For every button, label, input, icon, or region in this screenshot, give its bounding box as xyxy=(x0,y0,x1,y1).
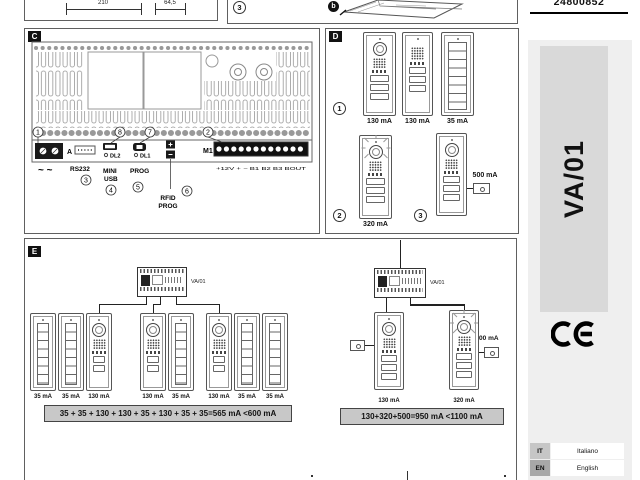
call-button xyxy=(443,194,460,201)
entry-panel-video xyxy=(206,313,232,391)
terminal-a-label: A xyxy=(67,149,72,156)
svg-text:3: 3 xyxy=(84,178,88,185)
callout-d2: 2 xyxy=(333,209,346,222)
speaker-grille xyxy=(373,58,386,68)
screw xyxy=(417,38,419,40)
call-button xyxy=(93,365,105,372)
accessory-device xyxy=(350,340,365,351)
connector-block xyxy=(141,275,150,286)
dl1-led xyxy=(134,153,137,156)
current-label: 35 mA xyxy=(168,394,194,400)
connector-block xyxy=(378,276,387,287)
prog-label: PROG xyxy=(130,168,149,175)
callout-d1: 1 xyxy=(333,102,346,115)
registration-mark xyxy=(504,475,506,477)
wire xyxy=(176,304,220,305)
dimension-line xyxy=(67,9,141,10)
wire xyxy=(466,188,473,189)
language-code: EN xyxy=(530,460,550,476)
call-button xyxy=(443,176,460,183)
call-button xyxy=(456,371,472,378)
call-button xyxy=(456,353,472,360)
wire xyxy=(410,304,465,306)
callout-b-badge: b xyxy=(328,1,339,12)
screw xyxy=(388,318,390,320)
camera-lens xyxy=(146,323,160,337)
mini-buttons xyxy=(146,351,161,354)
call-button xyxy=(456,362,472,369)
wire xyxy=(365,345,374,346)
sidebar: VA/01 IT Italiano EN English xyxy=(528,40,632,480)
m1-label: M1 xyxy=(203,148,213,155)
callout-d3: 3 xyxy=(414,209,427,222)
dimensions-box: 210 64,5 xyxy=(24,0,218,21)
button-stack xyxy=(448,42,467,110)
screw xyxy=(463,316,465,318)
wire xyxy=(153,304,161,305)
dimension-tick xyxy=(141,3,142,15)
callout-7: 7 xyxy=(145,127,155,137)
screw xyxy=(180,319,182,321)
current-label: 130 mA xyxy=(402,118,433,125)
callout-2: 2 xyxy=(203,127,213,137)
button-stack xyxy=(65,323,77,385)
call-button xyxy=(409,67,426,74)
va01-unit xyxy=(137,267,187,297)
part-number: 24800852 xyxy=(530,0,628,14)
entry-panel-video xyxy=(436,133,467,216)
board-top-plate xyxy=(32,42,312,140)
label-window xyxy=(389,276,400,286)
dl2-label: DL2 xyxy=(110,154,120,160)
m1-terminal-labels: +12V + − B1 B2 B3 BOUT xyxy=(216,166,307,171)
entry-panel-buttons xyxy=(168,313,194,391)
terminal-block-m1 xyxy=(214,142,308,156)
screw xyxy=(457,38,459,40)
language-name: Italiano xyxy=(551,443,624,459)
wire xyxy=(400,240,401,268)
svg-text:4: 4 xyxy=(109,188,113,195)
svg-text:5: 5 xyxy=(136,185,140,192)
callout-5: 5 xyxy=(133,182,143,192)
section-d-label: D xyxy=(329,31,342,42)
call-button xyxy=(93,356,105,363)
dip-contacts xyxy=(402,278,422,284)
speaker-grille xyxy=(369,161,382,171)
call-button xyxy=(213,356,225,363)
camera-lens xyxy=(457,320,471,334)
terminal-row xyxy=(140,269,184,273)
camera-lens xyxy=(382,322,396,336)
current-label: 320 mA xyxy=(359,221,392,228)
current-label: 35 mA xyxy=(30,394,56,400)
screw xyxy=(274,319,276,321)
consumption-sum: 35 + 35 + 130 + 130 + 35 + 130 + 35 + 35… xyxy=(44,405,292,422)
mini-buttons xyxy=(372,70,387,73)
dl1-label: DL1 xyxy=(140,154,150,160)
entry-panel-audio xyxy=(402,32,433,116)
call-button xyxy=(366,196,385,203)
screw xyxy=(152,319,154,321)
svg-text:6: 6 xyxy=(185,189,189,196)
svg-text:PROG: PROG xyxy=(158,203,177,210)
video-connector xyxy=(256,64,272,80)
entry-panel-video xyxy=(374,312,404,390)
current-label: 130 mA xyxy=(206,394,232,400)
current-label: 130 mA xyxy=(374,398,404,404)
unit-label: VA/01 xyxy=(430,280,445,286)
speaker-grille xyxy=(147,339,160,349)
current-label: 35 mA xyxy=(262,394,288,400)
current-label: 35 mA xyxy=(441,118,474,125)
call-button xyxy=(409,85,426,92)
controller-board-drawing: A DL2 DL1 xyxy=(26,40,318,232)
terminal-row xyxy=(377,270,423,274)
call-button xyxy=(366,187,385,194)
callout-8: 8 xyxy=(115,127,125,137)
model-banner: VA/01 xyxy=(540,46,608,312)
manual-page: 210 64,5 3 b 24800852 C xyxy=(0,0,640,480)
camera-lens xyxy=(445,143,459,157)
button-stack xyxy=(175,323,187,385)
current-label: 35 mA xyxy=(58,394,84,400)
screw xyxy=(451,139,453,141)
ac-power-symbols: ~ ~ xyxy=(38,165,53,176)
language-row: EN English xyxy=(530,460,624,476)
rfid-prog-label: RFID xyxy=(160,195,175,202)
entry-panel-buttons xyxy=(30,313,56,391)
registration-mark xyxy=(407,471,408,480)
language-row: IT Italiano xyxy=(530,443,624,459)
va01-unit xyxy=(374,268,426,298)
svg-text:7: 7 xyxy=(148,130,152,137)
entry-panel-buttons xyxy=(262,313,288,391)
entry-panel-video xyxy=(86,313,112,391)
dimension-value: 210 xyxy=(83,0,123,6)
language-name: English xyxy=(551,460,624,476)
mini-buttons xyxy=(382,350,397,353)
screw xyxy=(98,319,100,321)
camera-lens xyxy=(92,323,106,337)
accessory-device xyxy=(473,183,490,194)
call-button xyxy=(370,84,389,91)
svg-text:1: 1 xyxy=(36,130,40,137)
call-button xyxy=(366,178,385,185)
mini-buttons xyxy=(410,62,425,65)
model-name: VA/01 xyxy=(559,140,590,218)
button-stack xyxy=(269,323,281,385)
rfid-jumper xyxy=(166,141,175,190)
step-number-callout: 3 xyxy=(233,1,246,14)
mini-buttons xyxy=(92,351,107,354)
wire xyxy=(386,298,387,312)
call-button xyxy=(443,185,460,192)
callout-3: 3 xyxy=(81,175,91,185)
device-isometric-sketch xyxy=(336,0,476,21)
video-connector xyxy=(230,64,246,80)
screw xyxy=(375,141,377,143)
speaker-grille xyxy=(93,339,106,349)
label-window xyxy=(152,275,163,285)
current-label: 130 mA xyxy=(86,394,112,400)
terminal-row xyxy=(140,287,184,291)
dimension-line xyxy=(155,9,185,10)
entry-panel-buttons xyxy=(441,32,474,116)
button-stack xyxy=(37,323,49,385)
language-code: IT xyxy=(530,443,550,459)
label-window xyxy=(88,52,143,109)
terminal-block-a xyxy=(35,143,63,159)
entry-panel-video xyxy=(140,313,166,391)
speaker-grille xyxy=(213,339,226,349)
camera-lens xyxy=(369,145,383,159)
call-button xyxy=(147,365,159,372)
button-stack xyxy=(241,323,253,385)
mini-usb-connector xyxy=(103,143,117,150)
rs232-label: RS232 xyxy=(70,166,90,173)
call-button xyxy=(370,93,389,100)
mini-buttons xyxy=(212,351,227,354)
mini-buttons xyxy=(444,171,459,174)
dl2-led xyxy=(104,153,107,156)
entry-panel-buttons xyxy=(234,313,260,391)
call-button xyxy=(213,365,225,372)
mini-buttons xyxy=(368,173,383,176)
svg-text:USB: USB xyxy=(104,176,118,183)
rs232-connector xyxy=(75,146,95,154)
call-button xyxy=(381,355,397,362)
section-e-label: E xyxy=(28,246,41,257)
callout-6: 6 xyxy=(182,186,192,196)
call-button xyxy=(381,373,397,380)
ce-mark-icon xyxy=(551,320,599,348)
screw xyxy=(379,38,381,40)
speaker-grille xyxy=(458,336,471,346)
camera-lens xyxy=(373,42,387,56)
entry-panel-video xyxy=(363,32,396,116)
label-window xyxy=(144,52,201,109)
step-box: 3 b xyxy=(227,0,518,24)
svg-text:8: 8 xyxy=(118,130,122,137)
unit-label: VA/01 xyxy=(191,279,206,285)
current-label: 320 mA xyxy=(449,398,479,404)
call-button xyxy=(147,356,159,363)
current-label: 130 mA xyxy=(140,394,166,400)
screw xyxy=(246,319,248,321)
consumption-sum: 130+320+500=950 mA <1100 mA xyxy=(340,408,504,425)
terminal-row xyxy=(377,288,423,292)
entry-panel-video-lit xyxy=(359,135,392,219)
registration-mark xyxy=(311,475,313,477)
dip-contacts xyxy=(165,277,183,283)
speaker-grille xyxy=(383,338,396,348)
screw xyxy=(42,319,44,321)
dimension-value: 64,5 xyxy=(153,0,187,6)
entry-panel-video-lit xyxy=(449,310,479,390)
call-button xyxy=(381,364,397,371)
current-label: 35 mA xyxy=(234,394,260,400)
mini-buttons xyxy=(457,348,472,351)
mini-usb-label: MINI xyxy=(103,168,117,175)
board-terminal-strip: A DL2 DL1 xyxy=(32,140,312,189)
screw xyxy=(70,319,72,321)
prog-button xyxy=(133,143,146,151)
callout-4: 4 xyxy=(106,185,116,195)
call-button xyxy=(409,76,426,83)
accessory-device xyxy=(484,347,499,358)
camera-lens xyxy=(212,323,226,337)
call-button xyxy=(370,75,389,82)
entry-panel-buttons xyxy=(58,313,84,391)
current-label: 130 mA xyxy=(363,118,396,125)
wire xyxy=(99,304,147,305)
svg-text:2: 2 xyxy=(206,130,210,137)
buzzer-hole xyxy=(206,55,218,67)
speaker-grille xyxy=(445,159,458,169)
accessory-current-label: 500 mA xyxy=(466,172,504,179)
speaker-grille xyxy=(411,47,424,60)
callout-1: 1 xyxy=(33,127,43,137)
screw xyxy=(218,319,220,321)
